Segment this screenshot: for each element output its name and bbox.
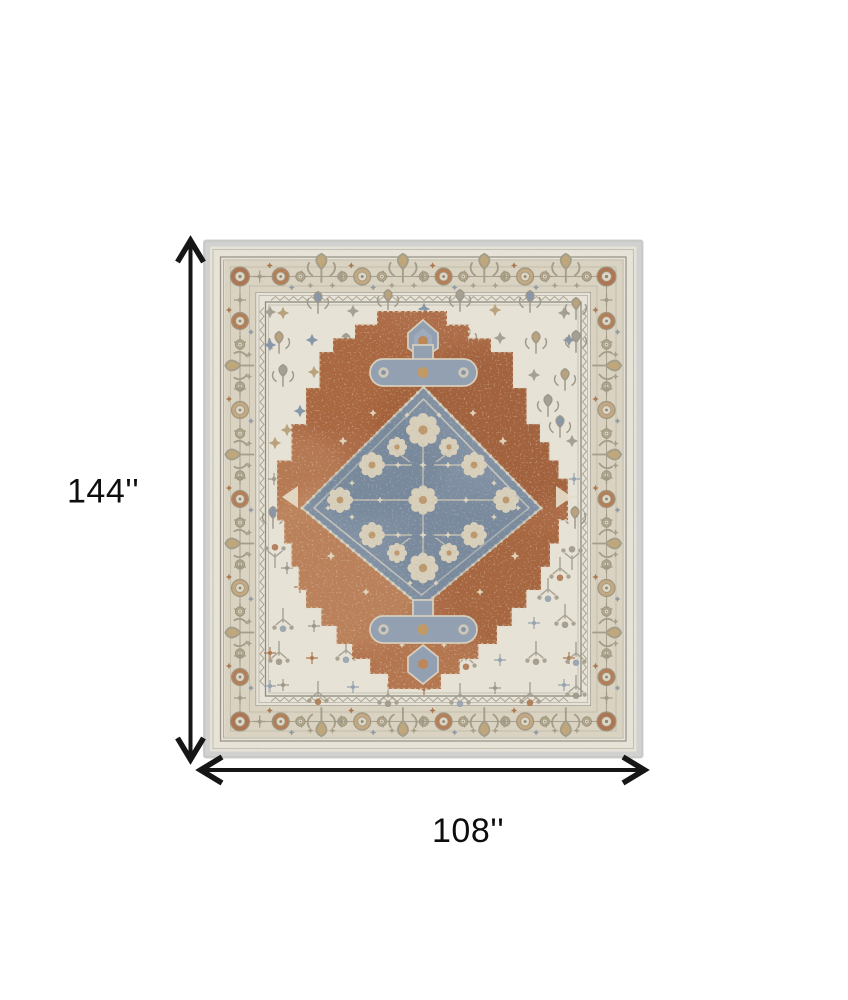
svg-text:108'': 108'' [432, 812, 504, 850]
svg-text:144'': 144'' [67, 473, 139, 511]
